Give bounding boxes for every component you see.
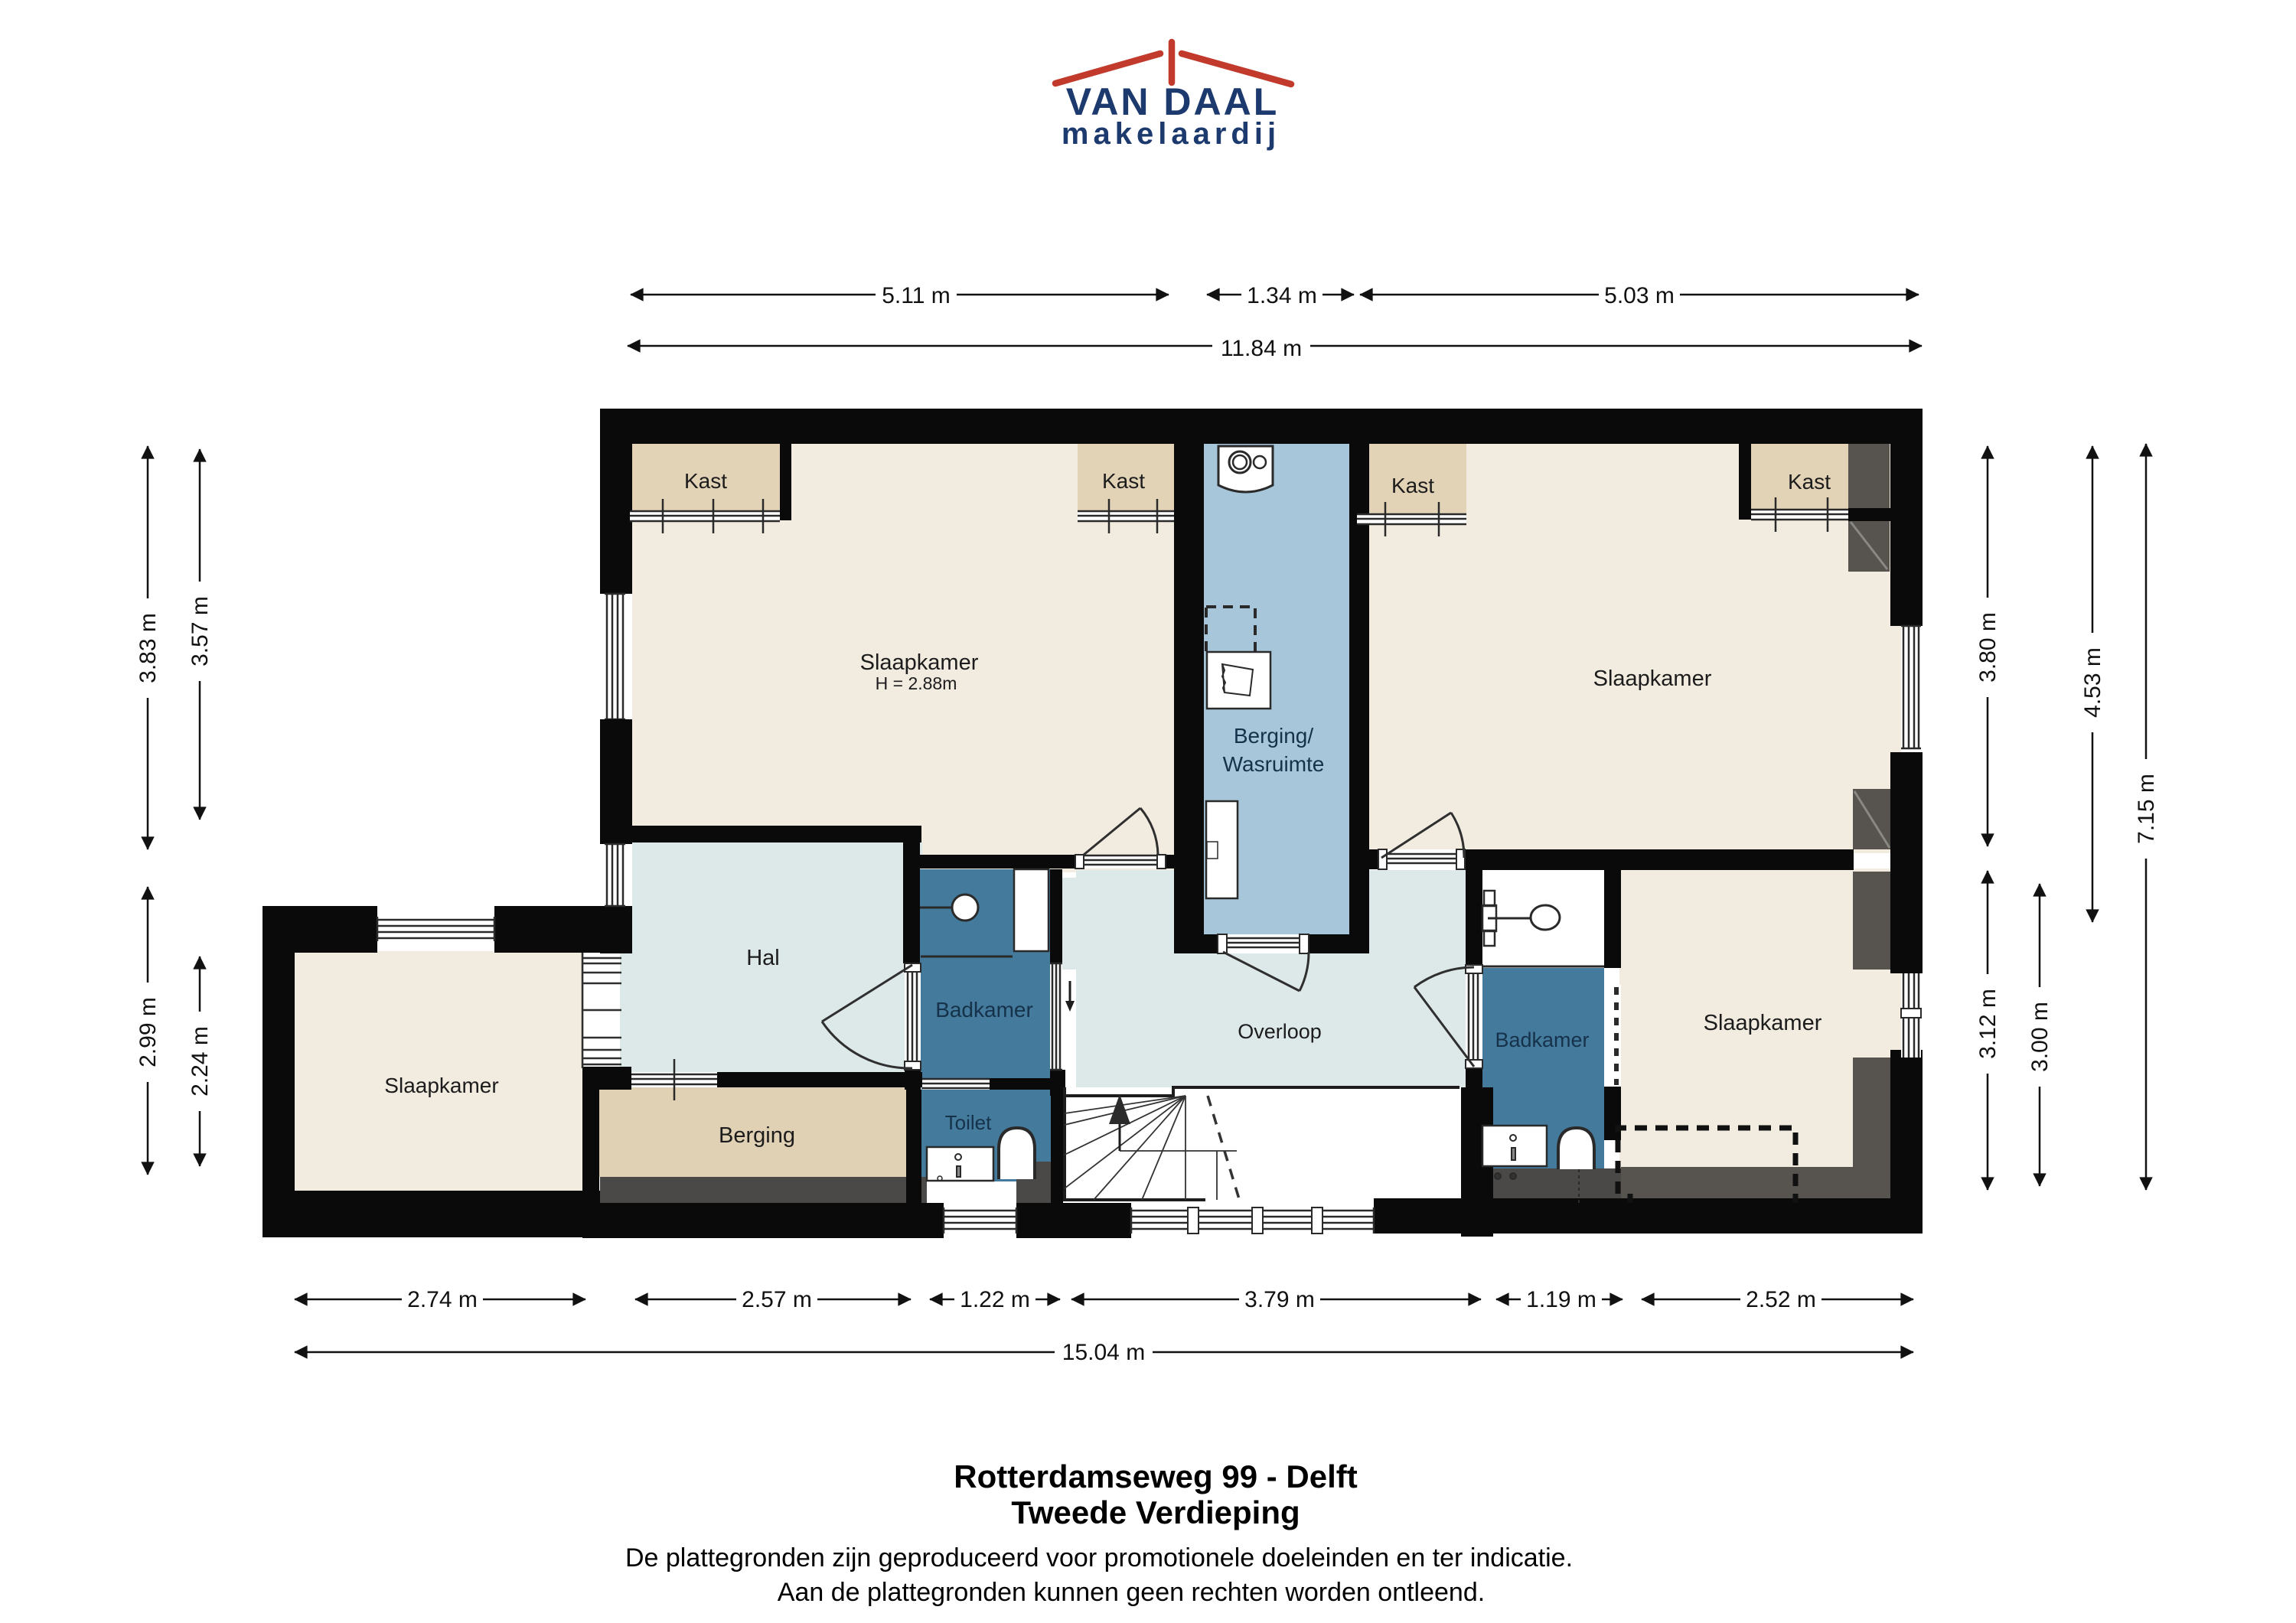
svg-text:2.24 m: 2.24 m	[188, 1026, 213, 1097]
svg-text:Slaapkamer: Slaapkamer	[1704, 1011, 1822, 1035]
svg-text:Toilet: Toilet	[945, 1111, 992, 1134]
svg-text:3.12 m: 3.12 m	[1975, 989, 2001, 1059]
svg-text:Badkamer: Badkamer	[935, 998, 1033, 1022]
svg-text:1.22 m: 1.22 m	[960, 1287, 1030, 1312]
svg-text:3.83 m: 3.83 m	[135, 613, 161, 683]
svg-text:Kast: Kast	[684, 469, 727, 493]
svg-text:2.57 m: 2.57 m	[742, 1287, 812, 1312]
svg-text:Hal: Hal	[746, 946, 780, 970]
svg-text:5.11 m: 5.11 m	[882, 283, 951, 308]
svg-text:15.04 m: 15.04 m	[1062, 1340, 1145, 1365]
svg-text:1.19 m: 1.19 m	[1526, 1287, 1596, 1312]
svg-text:11.84 m: 11.84 m	[1221, 336, 1302, 361]
svg-text:3.57 m: 3.57 m	[188, 596, 213, 666]
svg-text:Rotterdamseweg 99 - Delft: Rotterdamseweg 99 - Delft	[954, 1458, 1357, 1494]
svg-text:H = 2.88m: H = 2.88m	[876, 673, 957, 693]
svg-text:Wasruimte: Wasruimte	[1223, 752, 1325, 776]
svg-text:Berging/: Berging/	[1234, 724, 1314, 748]
svg-text:Tweede Verdieping: Tweede Verdieping	[1011, 1494, 1300, 1530]
svg-text:Badkamer: Badkamer	[1495, 1028, 1589, 1051]
svg-text:Slaapkamer: Slaapkamer	[384, 1074, 498, 1097]
svg-text:De plattegronden zijn geproduc: De plattegronden zijn geproduceerd voor …	[625, 1543, 1573, 1572]
svg-text:Aan de plattegronden kunnen ge: Aan de plattegronden kunnen geen rechten…	[778, 1578, 1485, 1607]
svg-text:4.53 m: 4.53 m	[2080, 647, 2105, 718]
svg-text:Kast: Kast	[1102, 469, 1145, 493]
svg-text:2.52 m: 2.52 m	[1746, 1287, 1816, 1312]
svg-text:Kast: Kast	[1788, 470, 1831, 494]
svg-text:2.74 m: 2.74 m	[407, 1287, 478, 1312]
svg-text:1.34 m: 1.34 m	[1247, 283, 1317, 308]
svg-text:Berging: Berging	[719, 1123, 795, 1148]
svg-text:Kast: Kast	[1391, 474, 1434, 497]
svg-text:makelaardij: makelaardij	[1062, 117, 1280, 151]
svg-text:Overloop: Overloop	[1238, 1020, 1322, 1043]
svg-text:5.03 m: 5.03 m	[1604, 283, 1675, 308]
svg-text:Slaapkamer: Slaapkamer	[860, 650, 979, 675]
svg-text:2.99 m: 2.99 m	[135, 997, 161, 1067]
svg-text:7.15 m: 7.15 m	[2134, 774, 2159, 844]
svg-text:Slaapkamer: Slaapkamer	[1593, 666, 1712, 691]
svg-text:3.00 m: 3.00 m	[2027, 1002, 2053, 1072]
svg-text:3.79 m: 3.79 m	[1244, 1287, 1315, 1312]
svg-text:3.80 m: 3.80 m	[1975, 612, 2001, 683]
